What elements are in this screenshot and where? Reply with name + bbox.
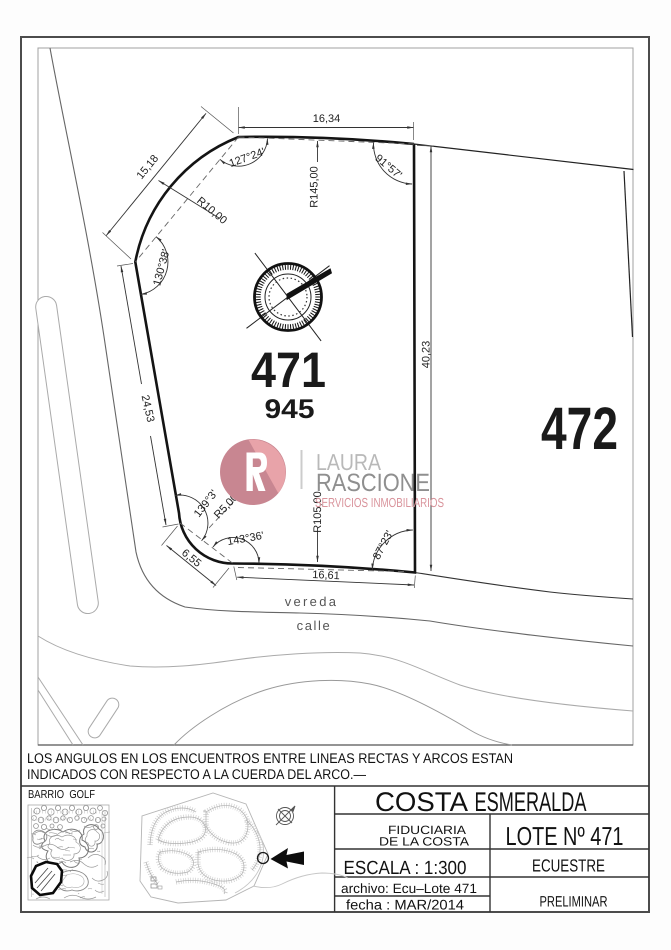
svg-text:40,23: 40,23 [421,341,433,369]
svg-text:RASCIONE: RASCIONE [316,469,430,497]
svg-text:945: 945 [265,394,315,424]
svg-text:calle: calle [297,618,332,633]
svg-text:INDICADOS CON RESPECTO A LA CU: INDICADOS CON RESPECTO A LA CUERDA DEL A… [27,766,366,782]
svg-text:SERVICIOS INMOBILIARIOS: SERVICIOS INMOBILIARIOS [315,495,444,510]
svg-text:ESMERALDA: ESMERALDA [475,787,587,817]
svg-text:LOTE Nº 471: LOTE Nº 471 [506,821,624,851]
svg-text:LOS ANGULOS EN LOS ENCUENTROS: LOS ANGULOS EN LOS ENCUENTROS ENTRE LINE… [27,750,513,766]
svg-text:471: 471 [251,342,326,398]
svg-text:PRELIMINAR: PRELIMINAR [540,894,608,911]
svg-text:DE LA COSTA: DE LA COSTA [379,835,469,849]
svg-text:BARRIO GOLF: BARRIO GOLF [28,789,95,801]
svg-text:fecha : MAR/2014: fecha : MAR/2014 [346,897,464,913]
svg-text:ECUESTRE: ECUESTRE [532,856,605,876]
svg-text:archivo: Ecu–Lote 471: archivo: Ecu–Lote 471 [341,881,477,896]
svg-text:472: 472 [541,395,618,462]
svg-text:vereda: vereda [285,594,339,609]
svg-text:16,34: 16,34 [313,113,341,125]
svg-text:ESCALA : 1:300: ESCALA : 1:300 [344,858,467,879]
svg-text:R145,00: R145,00 [309,166,321,208]
svg-text:COSTA: COSTA [375,787,468,817]
svg-text:16,61: 16,61 [312,569,340,582]
